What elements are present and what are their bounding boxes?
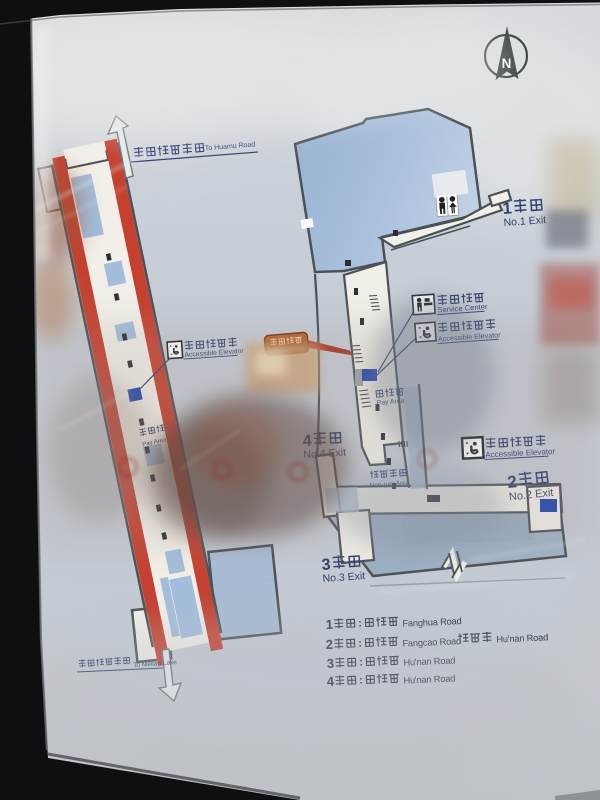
- svg-text:3: 3: [321, 556, 331, 574]
- svg-text:1: 1: [502, 199, 512, 218]
